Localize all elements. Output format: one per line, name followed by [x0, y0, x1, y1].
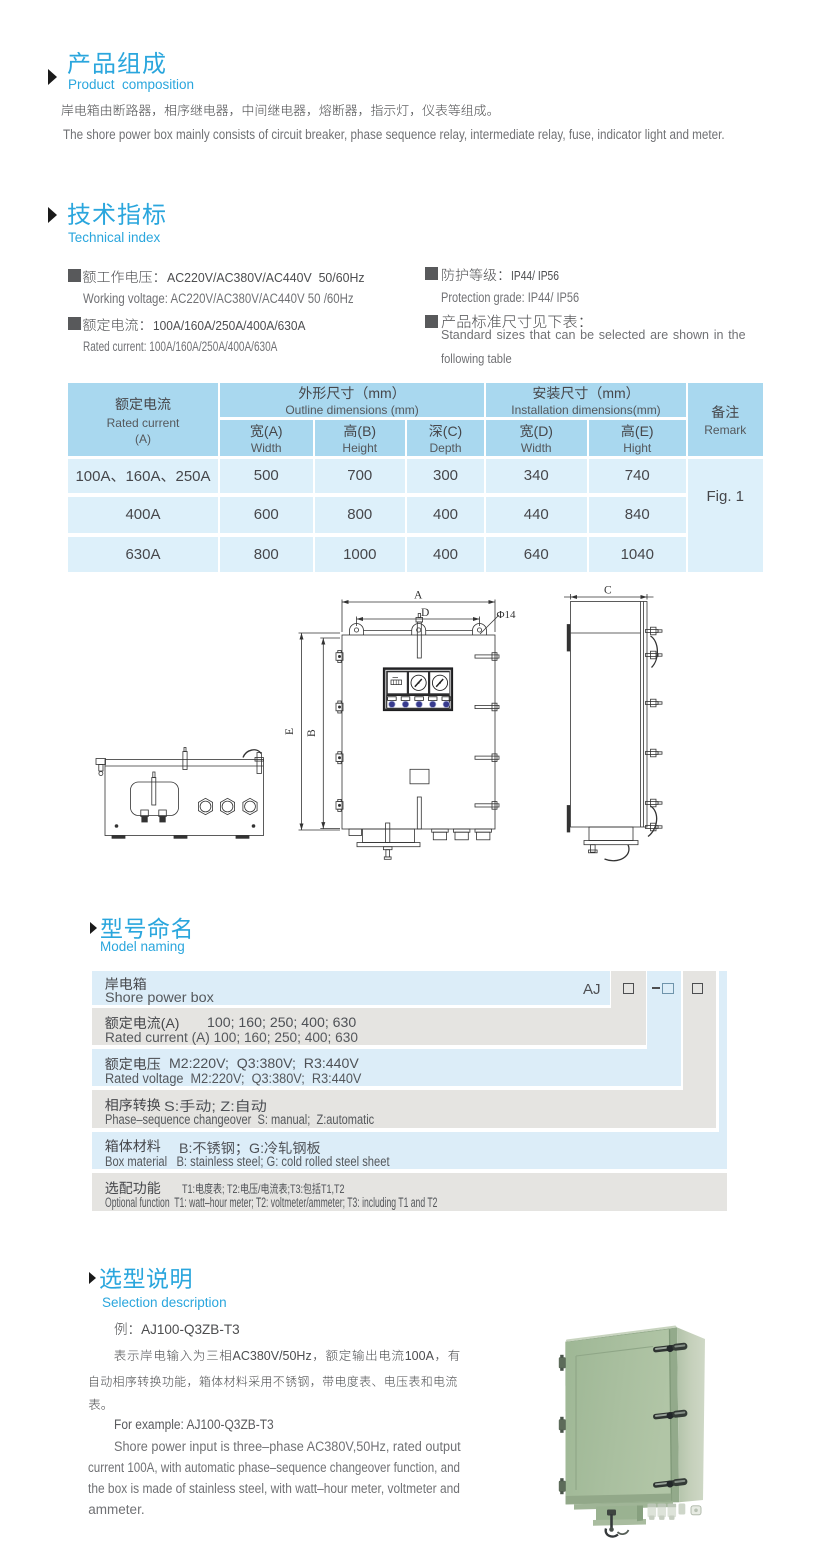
svg-text:Φ14: Φ14 — [497, 609, 517, 621]
svg-text:C: C — [604, 585, 612, 597]
svg-text:B: B — [306, 729, 318, 737]
svg-text:E: E — [284, 728, 296, 735]
svg-text:A: A — [414, 590, 423, 602]
